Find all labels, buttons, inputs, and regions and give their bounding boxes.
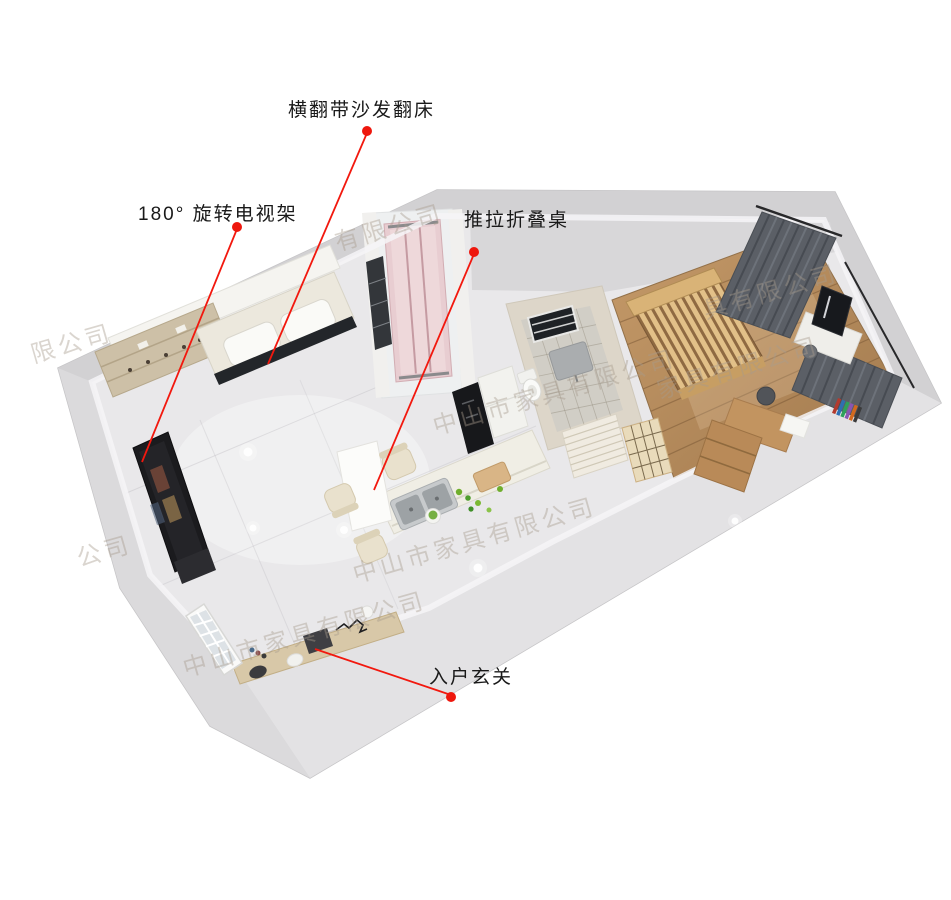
desk-chair [757,387,775,405]
bed-niche [362,209,476,398]
pink-folding-bed [384,219,452,382]
sphere-decor [361,606,373,618]
floorplan-page: 有限公司 具有限公司 中山市家具有限公司 家具有限公司 中山市家具有限公司 中山… [0,0,951,900]
floorplan-3d-rendering [0,0,951,900]
annotation-dot-entry [446,692,456,702]
annotation-dot-table [469,247,479,257]
salad-bowl [426,509,441,524]
annotation-label-flip-sofa-bed: 横翻带沙发翻床 [288,95,435,122]
annotation-label-rotating-tv-mount: 180° 旋转电视架 [138,199,298,226]
vanity-stool [803,345,817,359]
annotation-dot-sofa-bed [362,126,372,136]
annotation-label-sliding-folding-table: 推拉折叠桌 [464,205,569,232]
annotation-label-entry-foyer: 入户玄关 [429,662,513,689]
